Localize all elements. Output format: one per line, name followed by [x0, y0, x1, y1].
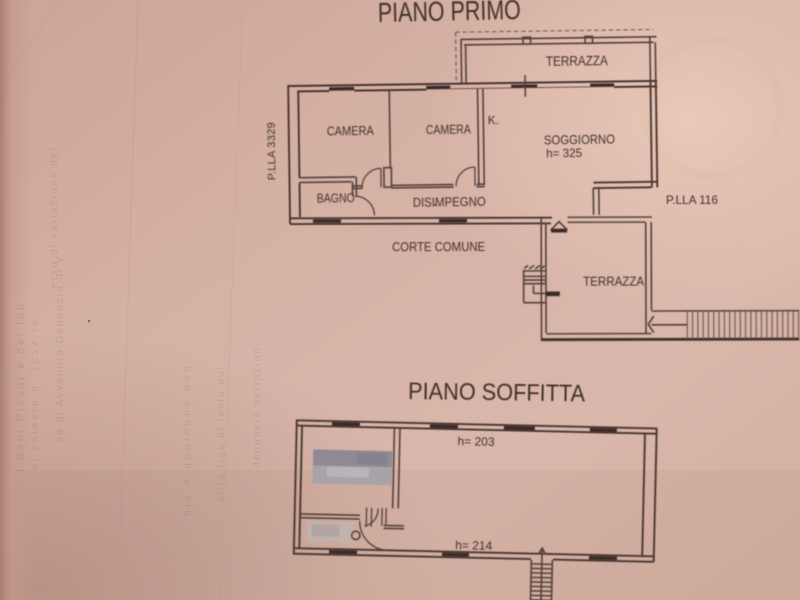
svg-text:h= 203: h= 203 — [457, 434, 495, 449]
svg-text:I Beni Pisani e del fab: I Beni Pisani e del fab — [15, 304, 27, 472]
svg-text:P.LLA 3329: P.LLA 3329 — [266, 122, 279, 180]
svg-text:denuncia variazion: denuncia variazion — [252, 348, 263, 468]
svg-text:BAGNO: BAGNO — [317, 190, 355, 206]
svg-text:al catasto n. 1014 re: al catasto n. 1014 re — [30, 320, 41, 470]
svg-text:TERRAZZA: TERRAZZA — [583, 274, 644, 289]
svg-text:h= 325: h= 325 — [546, 146, 582, 161]
svg-text:CORTE COMUNE: CORTE COMUNE — [392, 239, 485, 254]
svg-text:DISIMPEGNO: DISIMPEGNO — [413, 194, 486, 210]
svg-text:CAMERA: CAMERA — [426, 122, 471, 138]
svg-text:PIANO PRIMO: PIANO PRIMO — [377, 0, 521, 28]
svg-text:CAMERA: CAMERA — [327, 123, 374, 139]
svg-text:K.: K. — [488, 113, 500, 127]
svg-text:TERRAZZA: TERRAZZA — [546, 52, 609, 69]
svg-text:h= 214: h= 214 — [455, 538, 493, 553]
svg-text:P.LLA 116: P.LLA 116 — [666, 193, 718, 207]
svg-text:erso di variazione del: erso di variazione del — [49, 148, 60, 288]
svg-text:PIANO SOFFITTA: PIANO SOFFITTA — [408, 378, 585, 407]
